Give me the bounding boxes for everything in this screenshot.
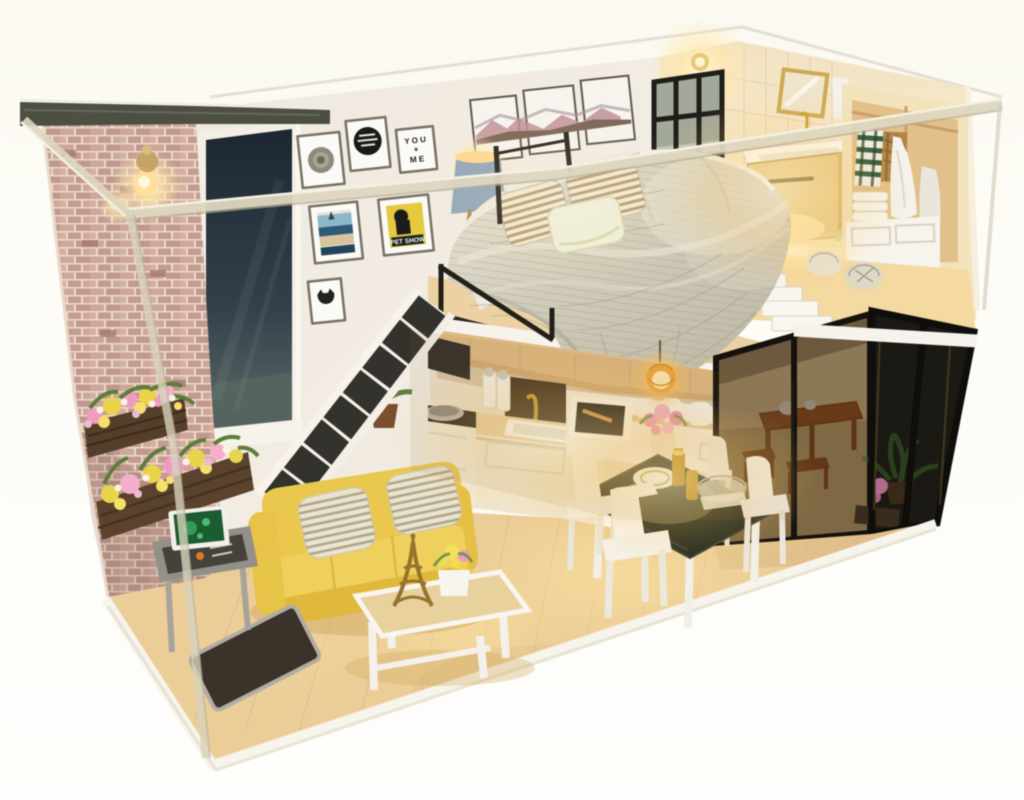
svg-text:M E: M E	[410, 154, 426, 165]
